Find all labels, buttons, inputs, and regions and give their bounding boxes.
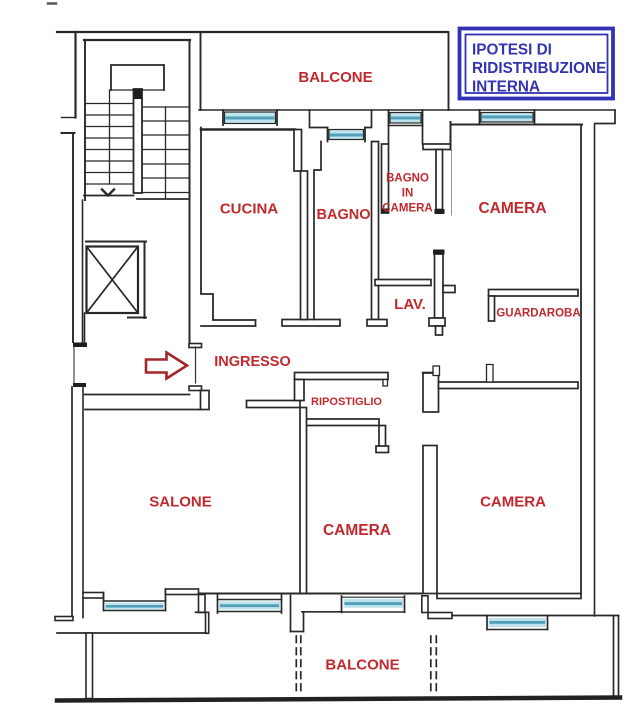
svg-text:CAMERA: CAMERA (478, 200, 546, 217)
svg-text:SALONE: SALONE (149, 494, 212, 511)
svg-text:CAMERA: CAMERA (382, 203, 432, 215)
svg-text:INGRESSO: INGRESSO (214, 354, 291, 370)
svg-text:INTERNA: INTERNA (472, 78, 540, 95)
svg-text:IPOTESI DI: IPOTESI DI (472, 42, 552, 59)
svg-text:CUCINA: CUCINA (220, 201, 278, 218)
svg-text:CAMERA: CAMERA (323, 522, 391, 539)
svg-text:BALCONE: BALCONE (325, 657, 399, 674)
svg-text:BAGNO: BAGNO (317, 207, 371, 223)
svg-text:IN: IN (402, 188, 414, 200)
svg-text:RIDISTRIBUZIONE: RIDISTRIBUZIONE (472, 60, 606, 77)
svg-text:BALCONE: BALCONE (298, 69, 372, 86)
svg-text:BAGNO: BAGNO (386, 173, 429, 185)
svg-text:RIPOSTIGLIO: RIPOSTIGLIO (311, 396, 382, 408)
svg-text:LAV.: LAV. (394, 296, 426, 313)
svg-text:GUARDAROBA: GUARDAROBA (496, 308, 580, 320)
svg-text:CAMERA: CAMERA (480, 494, 546, 511)
